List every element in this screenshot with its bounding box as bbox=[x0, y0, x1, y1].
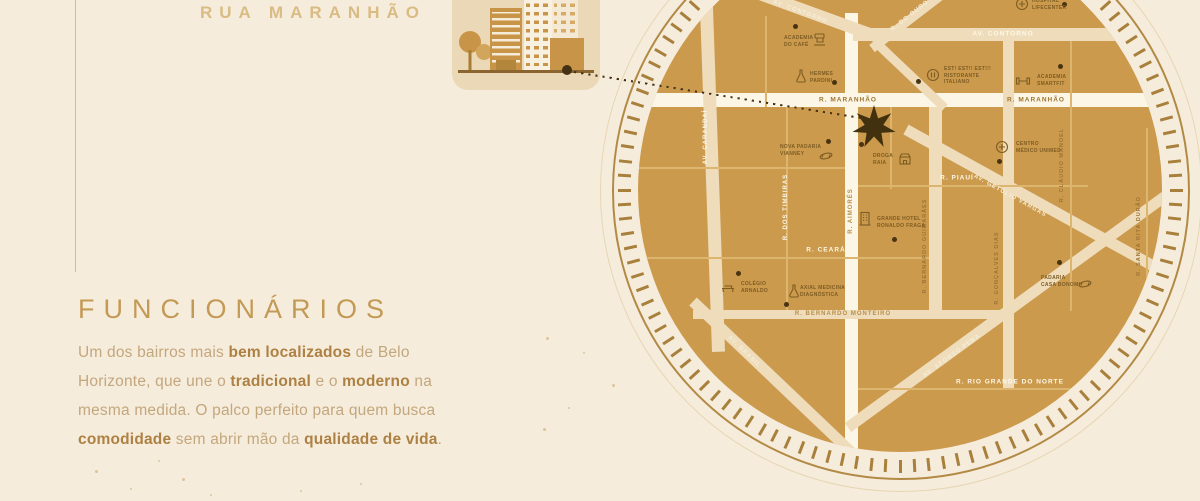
street-label: R. AIMORÉS bbox=[848, 188, 854, 233]
ring-tick bbox=[1170, 189, 1183, 192]
page: RUA MARANHÃO FUNCIONÁRIOS Um dos bairros… bbox=[0, 0, 1200, 501]
minor-street-line bbox=[1146, 128, 1148, 338]
poi-dot bbox=[784, 302, 789, 307]
ring-tick bbox=[1169, 203, 1182, 207]
street-title: RUA MARANHÃO bbox=[200, 3, 426, 23]
coffee-machine-icon bbox=[812, 32, 828, 48]
poi-dot bbox=[736, 271, 741, 276]
poi-label: CENTROMÉDICO UNIMED bbox=[1016, 141, 1061, 154]
ring-tick bbox=[913, 459, 917, 472]
dumbbell-icon bbox=[1015, 73, 1031, 89]
street-r-goncalves-dias bbox=[1003, 38, 1014, 390]
minor-street-line bbox=[638, 167, 845, 169]
hotel-icon bbox=[857, 211, 873, 227]
street-label: R. PIAUÍ bbox=[940, 175, 974, 182]
poi-label: ACADEMIASMARTFIT bbox=[1037, 74, 1066, 87]
ring-tick bbox=[618, 203, 631, 207]
location-star-marker bbox=[851, 104, 897, 150]
paragraph-line: mesma medida. O palco perfeito para quem… bbox=[78, 396, 478, 425]
poi-label: EST! EST!! EST!!!RISTORANTEITALIANO bbox=[944, 66, 991, 86]
poi-dot bbox=[793, 24, 798, 29]
street-av-carandai bbox=[697, 0, 725, 352]
street-label: R. SANTA RITA DURÃO bbox=[1136, 196, 1142, 276]
poi-label: DROGARAIA bbox=[873, 153, 893, 166]
neighborhood-paragraph: Um dos bairros mais bem localizados de B… bbox=[78, 338, 478, 454]
poi-dot bbox=[1057, 260, 1062, 265]
poi-dot bbox=[916, 79, 921, 84]
poi-dot bbox=[892, 237, 897, 242]
poi-dot bbox=[1058, 64, 1063, 69]
street-label: R. MARANHÃO bbox=[819, 97, 877, 104]
paragraph-line: Um dos bairros mais bem localizados de B… bbox=[78, 338, 478, 367]
medical-circle-icon bbox=[994, 139, 1010, 155]
street-label: R. DOS TIMBIRAS bbox=[783, 174, 789, 240]
poi-label: COLÉGIOARNALDO bbox=[741, 281, 768, 294]
poi-label: HOSPITALLIFECENTER bbox=[1032, 0, 1066, 11]
building-illustration bbox=[452, 0, 600, 90]
poi-label: NOVA PADARIAVIANNEY bbox=[780, 144, 821, 157]
minor-street-line bbox=[1070, 41, 1072, 311]
minor-street-line bbox=[858, 388, 1148, 390]
paragraph-line: comodidade sem abrir mão da qualidade de… bbox=[78, 425, 478, 454]
poi-label: ACADEMIADO CAFÉ bbox=[784, 35, 813, 48]
street-label: R. CEARÁ bbox=[806, 247, 845, 254]
street-label: AV. BRASIL bbox=[726, 335, 761, 369]
street-label: R. MARANHÃO bbox=[1007, 97, 1065, 104]
restaurant-icon bbox=[925, 67, 941, 83]
street-label: R. BERNARDO MONTEIRO bbox=[795, 311, 891, 317]
poi-label: PADARIACASA BONOMI bbox=[1041, 275, 1080, 288]
flask-icon bbox=[793, 68, 809, 84]
poi-label: AXIAL MEDICINADIAGNÓSTICA bbox=[800, 285, 845, 298]
medical-circle-icon bbox=[1014, 0, 1030, 12]
street-label: R. CLÁUDIO MANOEL bbox=[1059, 128, 1065, 202]
street-label: AV. AFONSO PENA bbox=[922, 333, 982, 379]
poi-label: GRANDE HOTELRONALDO FRAGA bbox=[877, 216, 925, 229]
street-label: AV. CARANDAÍ bbox=[703, 110, 709, 165]
neighborhood-heading: FUNCIONÁRIOS bbox=[78, 294, 393, 325]
minor-street-line bbox=[765, 16, 767, 107]
building-location-dot bbox=[562, 65, 572, 75]
minor-street-line bbox=[638, 257, 929, 259]
paragraph-line: Horizonte, que une o tradicional e o mod… bbox=[78, 367, 478, 396]
building-card bbox=[452, 0, 600, 90]
poi-dot bbox=[826, 139, 831, 144]
minor-street-line bbox=[858, 185, 1088, 187]
ring-tick bbox=[899, 460, 902, 473]
street-label: AV. CONTORNO bbox=[972, 31, 1033, 38]
poi-label: HERMESPARDINI bbox=[810, 71, 833, 84]
left-vertical-rule bbox=[75, 0, 76, 272]
store-icon bbox=[897, 151, 913, 167]
street-label: R. BERNARDO GUIMARÃES bbox=[922, 199, 928, 294]
ring-tick bbox=[618, 189, 631, 192]
poi-dot bbox=[997, 159, 1002, 164]
street-label: R. GONÇALVES DIAS bbox=[994, 231, 1000, 304]
street-label: R. RIO GRANDE DO NORTE bbox=[956, 379, 1064, 386]
bench-icon bbox=[720, 279, 736, 295]
